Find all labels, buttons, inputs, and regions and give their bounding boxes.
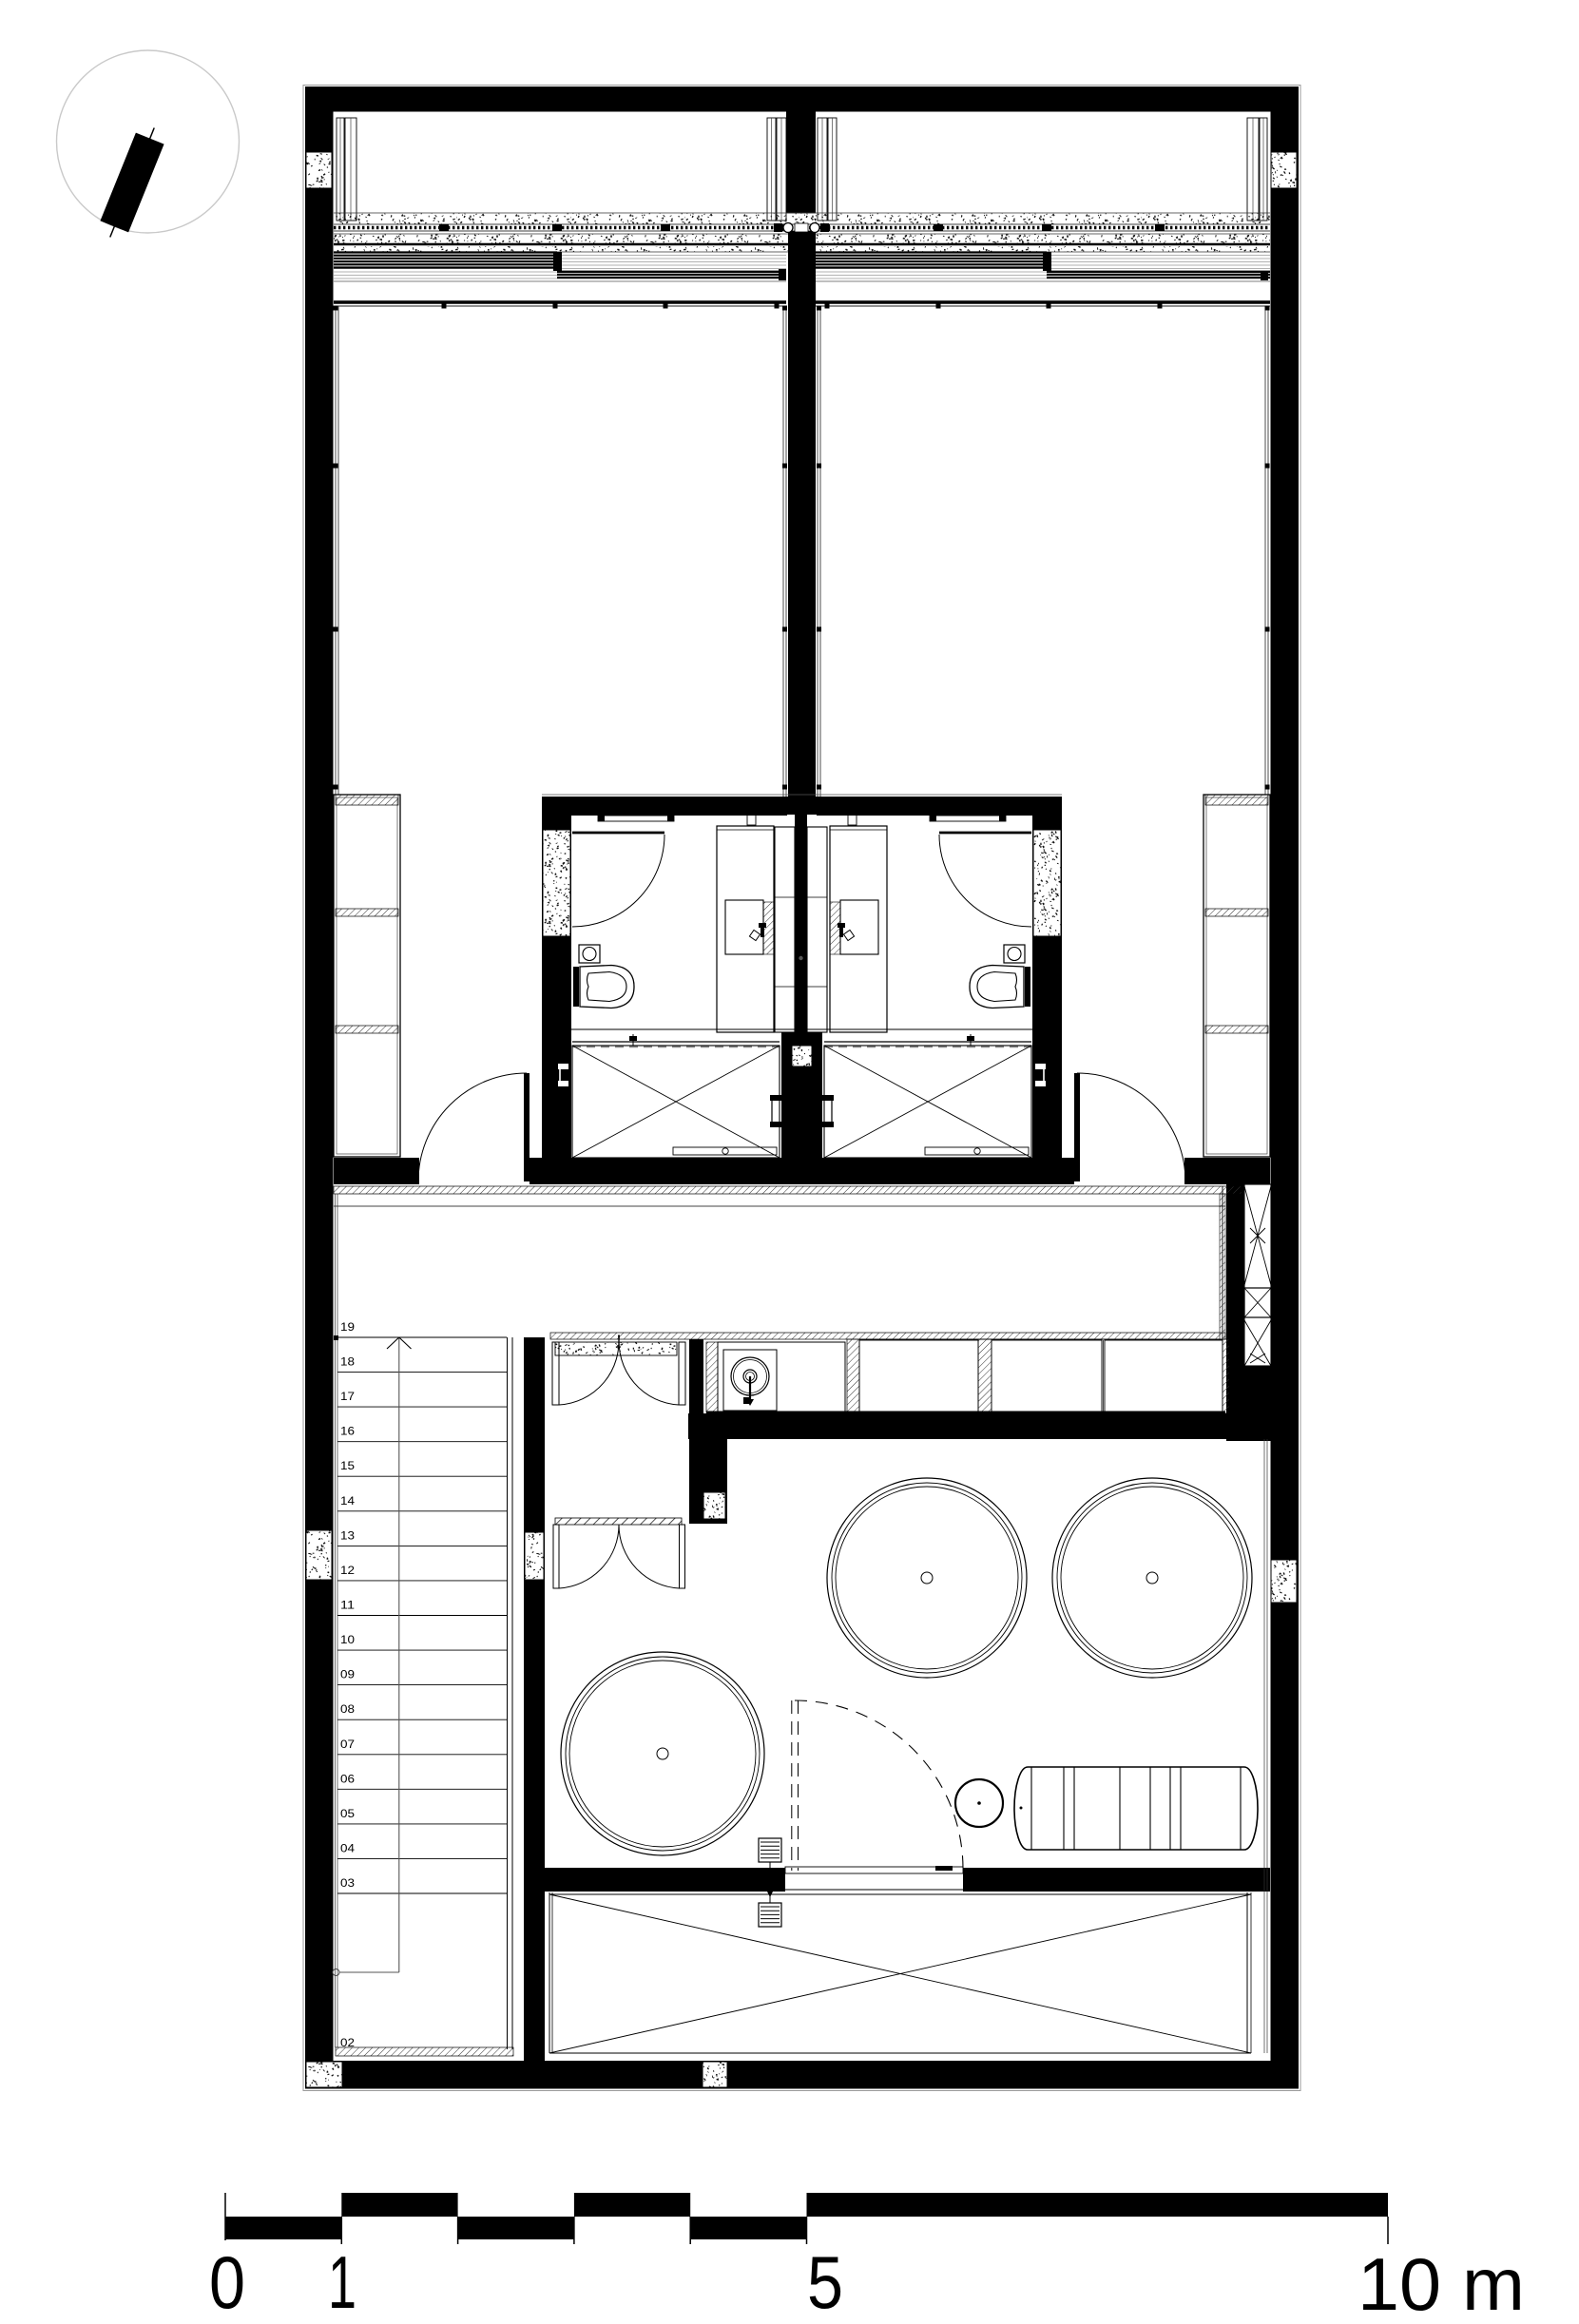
svg-text:10 m: 10 m xyxy=(1358,2242,1525,2324)
svg-text:04: 04 xyxy=(340,1842,356,1854)
svg-text:10: 10 xyxy=(340,1634,355,1646)
svg-text:07: 07 xyxy=(340,1738,355,1751)
svg-text:5: 5 xyxy=(807,2240,843,2324)
svg-text:15: 15 xyxy=(340,1460,355,1472)
svg-text:18: 18 xyxy=(340,1356,355,1369)
svg-text:17: 17 xyxy=(340,1391,355,1403)
svg-text:19: 19 xyxy=(340,1321,355,1334)
svg-text:09: 09 xyxy=(340,1669,355,1681)
svg-text:14: 14 xyxy=(340,1495,356,1508)
svg-text:05: 05 xyxy=(340,1808,355,1820)
svg-text:13: 13 xyxy=(340,1529,355,1542)
svg-text:1: 1 xyxy=(328,2240,356,2324)
svg-text:16: 16 xyxy=(340,1426,355,1438)
svg-text:11: 11 xyxy=(340,1600,355,1612)
svg-text:08: 08 xyxy=(340,1703,355,1716)
svg-text:12: 12 xyxy=(340,1565,355,1577)
svg-text:03: 03 xyxy=(340,1877,355,1890)
svg-text:06: 06 xyxy=(340,1773,355,1785)
svg-text:0: 0 xyxy=(209,2240,245,2324)
